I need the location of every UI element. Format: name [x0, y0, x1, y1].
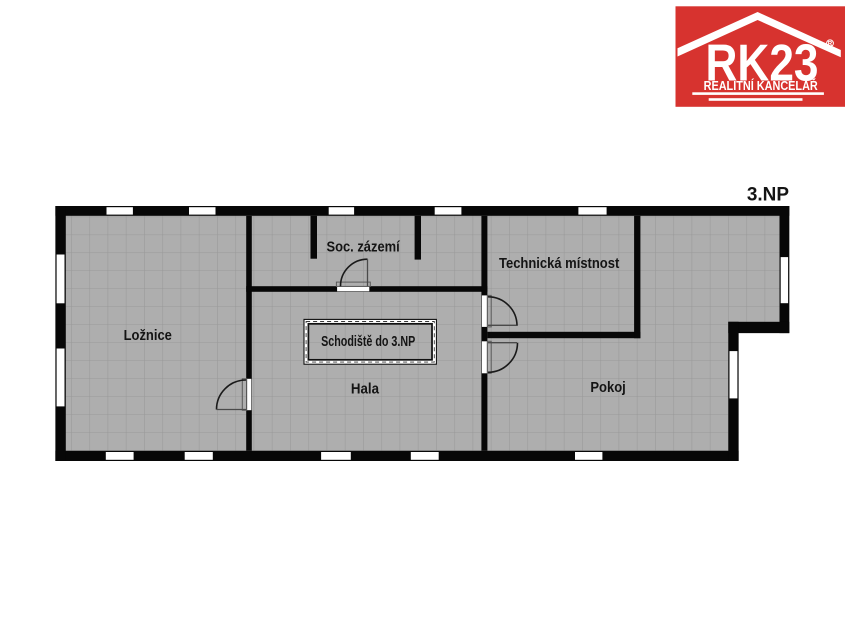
svg-text:R: R: [828, 41, 833, 48]
svg-text:REALITNÍ KANCELÁŘ: REALITNÍ KANCELÁŘ: [704, 78, 818, 93]
svg-text:Hala: Hala: [351, 381, 380, 398]
svg-text:3.NP: 3.NP: [747, 183, 789, 205]
svg-text:Technická místnost: Technická místnost: [499, 255, 619, 272]
svg-text:Pokoj: Pokoj: [590, 379, 625, 396]
svg-text:Ložnice: Ložnice: [124, 327, 172, 344]
svg-text:Soc. zázemí: Soc. zázemí: [327, 239, 401, 256]
svg-text:Schodiště do 3.NP: Schodiště do 3.NP: [321, 334, 415, 350]
